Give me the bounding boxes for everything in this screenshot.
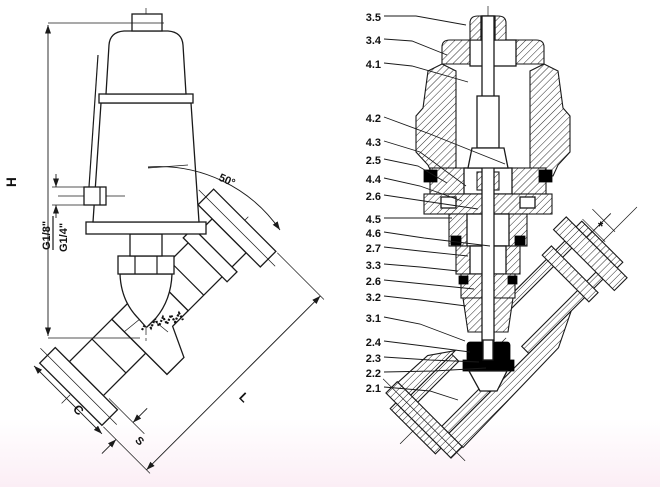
callout-label: 4.2 bbox=[366, 113, 381, 125]
technical-drawing-page: C S L G1/8" G1/4" bbox=[0, 0, 660, 487]
actuator-neck bbox=[130, 234, 162, 256]
callout-label: 3.5 bbox=[366, 12, 381, 24]
plug-seal-right bbox=[493, 342, 510, 362]
pilot-port bbox=[84, 187, 106, 205]
callout-label: 2.5 bbox=[366, 155, 381, 167]
bonnet-seal-right bbox=[515, 236, 525, 245]
callout-label: 2.6 bbox=[366, 276, 381, 288]
port-thread-label-g14: G1/4" bbox=[58, 223, 70, 252]
callout-label: 2.7 bbox=[366, 243, 381, 255]
callout-label: 3.2 bbox=[366, 292, 381, 304]
valve-drawing: C S L G1/8" G1/4" bbox=[0, 0, 660, 487]
callout-label: 4.6 bbox=[366, 228, 381, 240]
plug-stem bbox=[483, 340, 493, 360]
sectional-view: * bbox=[359, 6, 660, 485]
external-view: C S L G1/8" G1/4" bbox=[4, 8, 340, 487]
callout-label: 3.1 bbox=[366, 313, 381, 325]
callout-label: 4.1 bbox=[366, 59, 381, 71]
gland-seal-left bbox=[459, 276, 468, 284]
dim-s-label: S bbox=[132, 435, 146, 449]
actuator-base-plate bbox=[86, 222, 206, 234]
callout-label: 3.3 bbox=[366, 260, 381, 272]
callout-label: 4.5 bbox=[366, 214, 381, 226]
dim-h-label: H bbox=[4, 177, 19, 187]
bonnet-seal-left bbox=[451, 236, 461, 245]
actuator-dome bbox=[106, 31, 186, 94]
gland-nut bbox=[118, 256, 174, 274]
callout-label: 4.3 bbox=[366, 137, 381, 149]
port-thread-label-g18: G1/8" bbox=[41, 221, 53, 250]
flange-dim-asterisk: * bbox=[598, 219, 604, 234]
callout-label: 2.4 bbox=[366, 337, 382, 349]
valve-stem bbox=[482, 16, 494, 342]
callout-label: 2.6 bbox=[366, 191, 381, 203]
dome-wall-right bbox=[530, 64, 570, 176]
callout-label: 2.1 bbox=[366, 383, 381, 395]
gland-seal-right bbox=[508, 276, 517, 284]
actuator-flange-band bbox=[99, 94, 193, 103]
actuator-body bbox=[93, 103, 199, 222]
callout-label: 4.4 bbox=[366, 174, 382, 186]
dim-l-label: L bbox=[236, 390, 252, 406]
stem-shoulder bbox=[468, 148, 508, 168]
stem-spring-guide bbox=[477, 96, 499, 148]
callout-label: 2.3 bbox=[366, 353, 381, 365]
callout-label: 3.4 bbox=[366, 35, 382, 47]
dome-wall-left bbox=[416, 64, 456, 176]
actuator-cap bbox=[132, 14, 162, 31]
callout-label: 2.2 bbox=[366, 368, 381, 380]
piston-seal-right bbox=[539, 170, 552, 182]
callout-labels: 3.5 3.4 4.1 4.2 4.3 2.5 4.4 2.6 4.5 4.6 … bbox=[366, 12, 382, 395]
